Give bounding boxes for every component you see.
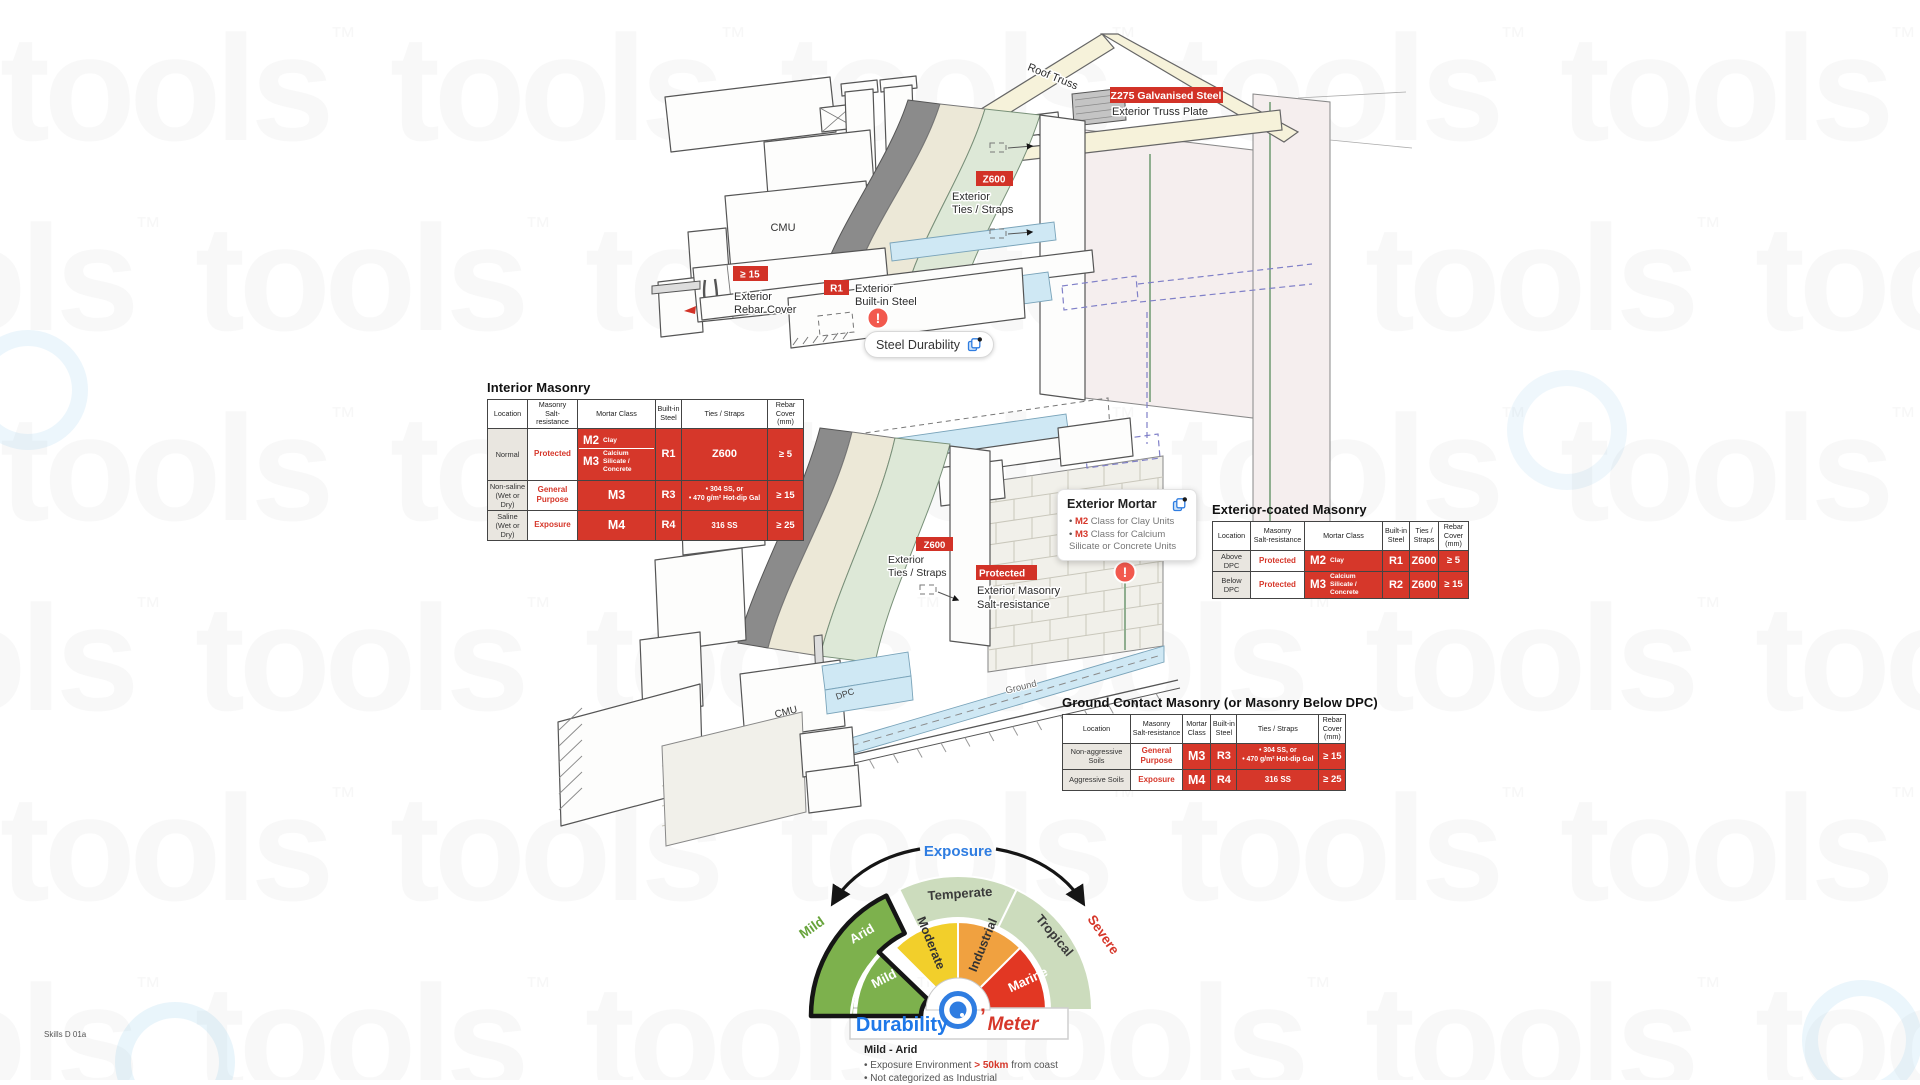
mortar-class-cell: M4 [1183,769,1211,790]
svg-text:Protected: Protected [979,569,1025,580]
reference-copy-icon[interactable] [1172,497,1187,512]
salt-label-2: Salt-resistance [977,599,1050,611]
location-cell: Saline (Wet or Dry) [488,510,528,540]
rebar-cover-cell: ≥ 25 [1319,769,1346,790]
mortar-bullet-m2: M2 Class for Clay Units [1067,516,1187,527]
svg-text:™: ™ [1695,211,1721,241]
table-row: NormalProtectedM2ClayM3Calcium Silicate … [488,428,804,480]
ties-straps-cell: 316 SS [1237,769,1319,790]
svg-text:™: ™ [135,211,161,241]
svg-text:!: ! [1123,564,1128,580]
svg-text:™: ™ [1695,591,1721,621]
column-header: Mortar Class [578,400,656,429]
warning-icon[interactable]: ! [868,308,889,329]
location-cell: Non-saline (Wet or Dry) [488,480,528,510]
mortar-class-cell: M2Clay [1305,550,1383,571]
ties-straps-cell: Z600 [682,428,768,480]
column-header: Built-in Steel [656,400,682,429]
svg-text:tools: tools [1365,954,1694,1080]
gauge-result-bullet-2: Not categorized as Industrial [864,1072,1094,1085]
salt-label-1: Exterior Masonry [977,585,1061,597]
ties-straps-cell: 316 SS [682,510,768,540]
exterior-table-title: Exterior-coated Masonry [1212,502,1469,517]
svg-text:tools: tools [195,194,524,362]
svg-text:™: ™ [915,591,941,621]
ties-straps-cell: Z600 [1410,550,1439,571]
column-header: Rebar Cover (mm) [1319,715,1346,744]
svg-text:tools: tools [1560,764,1889,932]
ties-lower-label-2: Ties / Straps [888,567,947,579]
salt-resistance-cell: Exposure [1131,769,1183,790]
z275-badge-label: Z275 Galvanised Steel [1111,90,1222,102]
gauge-result-text: Mild - Arid Exposure Environment > 50km … [864,1044,1094,1085]
table-row: Below DPCProtectedM3Calcium Silicate / C… [1213,571,1469,598]
svg-text:!: ! [876,310,881,326]
svg-text:R1: R1 [830,284,843,295]
salt-resistance-cell: Protected [1251,550,1305,571]
svg-text:™: ™ [1890,401,1916,431]
steel-durability-button[interactable]: Steel Durability [864,331,994,358]
column-header: Masonry Salt-resistance [1251,522,1305,551]
salt-resistance-cell: Protected [528,428,578,480]
svg-text:tools: tools [1560,4,1889,172]
svg-text:™: ™ [1695,971,1721,1001]
column-header: Ties / Straps [1237,715,1319,744]
salt-resistance-cell: General Purpose [1131,743,1183,769]
gauge-exposure-label: Exposure [924,843,992,860]
svg-text:™: ™ [1305,971,1331,1001]
column-header: Masonry Salt-resistance [528,400,578,429]
warning-icon-2[interactable]: ! [1115,562,1136,583]
ties-upper-label-1: Exterior [952,191,990,203]
rebar-label-1: Exterior [734,291,772,303]
mortar-bullet-m3: M3 Class for Calcium Silicate or Concret… [1067,529,1187,552]
location-cell: Aggressive Soils [1063,769,1131,790]
svg-text:™: ™ [1500,781,1526,811]
salt-resistance-cell: General Purpose [528,480,578,510]
salt-resistance-cell: Exposure [528,510,578,540]
column-header: Location [1213,522,1251,551]
built-in-steel-cell: R3 [656,480,682,510]
svg-text:tools: tools [1365,574,1694,742]
salt-resistance-cell: Protected [1251,571,1305,598]
location-cell: Below DPC [1213,571,1251,598]
builtin-label-1: Exterior [855,283,893,295]
svg-text:™: ™ [135,591,161,621]
svg-text:™: ™ [525,591,551,621]
masonry-diagram: tools™tools™tools™tools™tools™tools™tool… [0,0,1920,1080]
gauge-brand-mark: ’ [980,1005,986,1028]
rebar-cover-cell: ≥ 15 [768,480,804,510]
column-header: Rebar Cover (mm) [1439,522,1469,551]
svg-text:tools: tools [1755,954,1920,1080]
ties-upper-label-2: Ties / Straps [952,204,1014,216]
svg-text:tools: tools [0,574,134,742]
ties-straps-cell: • 304 SS, or• 470 g/m² Hot-dip Gal [1237,743,1319,769]
location-cell: Above DPC [1213,550,1251,571]
svg-text:™: ™ [525,211,551,241]
exterior-mortar-title: Exterior Mortar [1067,497,1157,511]
svg-text:tools: tools [1755,574,1920,742]
svg-text:Z600: Z600 [924,540,946,551]
gauge-brand-durability: Durability [856,1014,949,1036]
column-header: Masonry Salt-resistance [1131,715,1183,744]
column-header: Mortar Class [1305,522,1383,551]
column-header: Ties / Straps [1410,522,1439,551]
sheet-code: Skills D 01a [44,1030,86,1039]
ties-straps-cell: • 304 SS, or• 470 g/m² Hot-dip Gal [682,480,768,510]
svg-text:™: ™ [135,971,161,1001]
rebar-cover-cell: ≥ 5 [768,428,804,480]
svg-text:™: ™ [1890,21,1916,51]
exterior-masonry-table: Exterior-coated MasonryLocationMasonry S… [1212,502,1469,599]
svg-text:tools: tools [0,954,134,1080]
mortar-class-cell: M3Calcium Silicate / Concrete [1305,571,1383,598]
mortar-class-cell: M4 [578,510,656,540]
mortar-class-cell: M3 [578,480,656,510]
built-in-steel-cell: R1 [1383,550,1410,571]
column-header: Rebar Cover (mm) [768,400,804,429]
column-header: Built-in Steel [1383,522,1410,551]
rebar-cover-cell: ≥ 5 [1439,550,1469,571]
svg-text:™: ™ [1500,21,1526,51]
svg-text:tools: tools [390,4,719,172]
table-row: Saline (Wet or Dry)ExposureM4R4316 SS≥ 2… [488,510,804,540]
built-in-steel-cell: R4 [1211,769,1237,790]
svg-text:tools: tools [0,764,329,932]
interior-table-title: Interior Masonry [487,380,804,395]
table-row: Non-aggressive SoilsGeneral PurposeM3R3•… [1063,743,1346,769]
gauge-result-bullet-1: Exposure Environment > 50km from coast [864,1059,1094,1072]
mortar-class-cell: M2ClayM3Calcium Silicate / Concrete [578,428,656,480]
svg-text:™: ™ [330,781,356,811]
exterior-mortar-callout: Exterior Mortar M2 Class for Clay Units … [1057,489,1197,561]
gauge-result-heading: Mild - Arid [864,1044,1094,1056]
table-row: Above DPCProtectedM2ClayR1Z600≥ 5 [1213,550,1469,571]
svg-text:tools: tools [195,574,524,742]
rebar-label-2: Rebar Cover [734,304,797,316]
location-cell: Non-aggressive Soils [1063,743,1131,769]
rebar-cover-cell: ≥ 25 [768,510,804,540]
right-wall-panel [1253,94,1330,556]
built-in-steel-cell: R4 [656,510,682,540]
mortar-class-cell: M3 [1183,743,1211,769]
ties-straps-cell: Z600 [1410,571,1439,598]
built-in-steel-cell: R1 [656,428,682,480]
builtin-label-2: Built-in Steel [855,296,917,308]
outer-leaf-lower [950,446,990,646]
ground-table-title: Ground Contact Masonry (or Masonry Below… [1062,695,1378,710]
svg-text:tools: tools [1755,194,1920,362]
svg-text:™: ™ [525,971,551,1001]
column-header: Ties / Straps [682,400,768,429]
gauge-brand-meter: Meter [988,1014,1040,1035]
location-cell: Normal [488,428,528,480]
column-header: Location [1063,715,1131,744]
svg-text:™: ™ [1890,781,1916,811]
built-in-steel-cell: R3 [1211,743,1237,769]
svg-text:™: ™ [330,21,356,51]
table-row: Aggressive SoilsExposureM4R4316 SS≥ 25 [1063,769,1346,790]
table-row: Non-saline (Wet or Dry)General PurposeM3… [488,480,804,510]
svg-text:tools: tools [0,4,329,172]
reference-copy-icon[interactable] [967,337,982,352]
rebar-cover-cell: ≥ 15 [1319,743,1346,769]
built-in-steel-cell: R2 [1383,571,1410,598]
ground-masonry-table: Ground Contact Masonry (or Masonry Below… [1062,695,1378,791]
ties-lower-label-1: Exterior [888,554,925,566]
svg-text:tools: tools [195,954,524,1080]
column-header: Mortar Class [1183,715,1211,744]
interior-masonry-table: Interior MasonryLocationMasonry Salt-res… [487,380,804,541]
column-header: Location [488,400,528,429]
svg-text:Z600: Z600 [983,175,1006,186]
steel-durability-label: Steel Durability [876,338,960,352]
svg-text:tools: tools [0,384,329,552]
rebar-cover-cell: ≥ 15 [1439,571,1469,598]
svg-text:™: ™ [720,21,746,51]
svg-text:≥ 15: ≥ 15 [740,270,760,281]
truss-plate-label: Exterior Truss Plate [1112,106,1208,118]
cmu-upper-label: CMU [770,222,795,234]
svg-text:tools: tools [1365,194,1694,362]
column-header: Built-in Steel [1211,715,1237,744]
svg-text:™: ™ [330,401,356,431]
